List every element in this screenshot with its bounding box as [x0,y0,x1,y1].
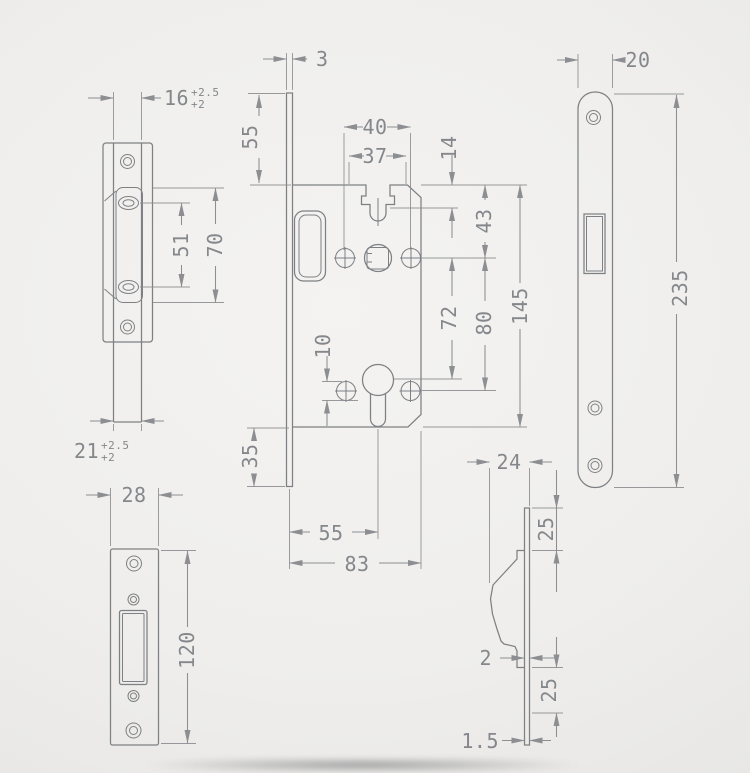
dim-145: 145 [508,287,532,325]
dim-21-tol: 21+2.5+2 [74,439,130,464]
lock-case-outline [287,93,422,487]
dimension-labels: 3554037144372801451035558316+2.5+2517021… [74,47,692,753]
photo-shadow-band [95,759,630,771]
technical-drawing-canvas: 3554037144372801451035558316+2.5+2517021… [0,0,750,773]
view-long-faceplate-front [557,54,684,488]
latch-opening [584,214,605,274]
dim-83: 83 [344,552,369,576]
faceplate-outline [578,92,613,488]
dim-2: 2 [479,646,492,670]
view-strike-plate-front [86,488,196,745]
faceplate-side-edge [525,508,530,745]
dim-35: 35 [238,443,262,468]
dim-40: 40 [362,115,387,139]
dim-1p5: 1.5 [461,729,499,753]
dim-25-upper: 25 [534,516,558,541]
view-strike-box-front [88,92,224,431]
dim-37: 37 [362,144,387,168]
strike-box-side-profile [491,551,525,668]
dim-10: 10 [311,333,335,358]
dim-28: 28 [121,483,146,507]
faceplate-dimension-lines [557,54,684,488]
euro-cylinder-hole [335,365,422,427]
strike-plate-dimension-lines [86,488,196,744]
dim-51: 51 [169,232,193,257]
strike-box-holes [119,155,139,335]
dim-20: 20 [625,48,650,72]
strike-box-outline [103,143,153,422]
dim-72: 72 [437,305,461,330]
dim-55-top: 55 [238,124,262,149]
dim-3: 3 [316,47,329,71]
dim-14: 14 [437,135,461,160]
dim-80: 80 [472,310,496,335]
spindle-follower [365,245,392,272]
dim-120: 120 [175,631,199,669]
strike-plate-outline [111,549,159,745]
dim-55-bottom: 55 [318,521,343,545]
faceplate-edge [287,93,293,487]
drawing-page: 3554037144372801451035558316+2.5+2517021… [0,0,750,773]
dim-16-tol: 16+2.5+2 [164,86,220,111]
dim-70: 70 [203,232,227,257]
deadbolt-opening [120,611,148,685]
dim-43: 43 [472,208,496,233]
dim-25-lower: 25 [537,677,561,702]
dim-24: 24 [496,450,521,474]
upper-fixing-holes [334,247,422,269]
dim-235: 235 [668,269,692,307]
